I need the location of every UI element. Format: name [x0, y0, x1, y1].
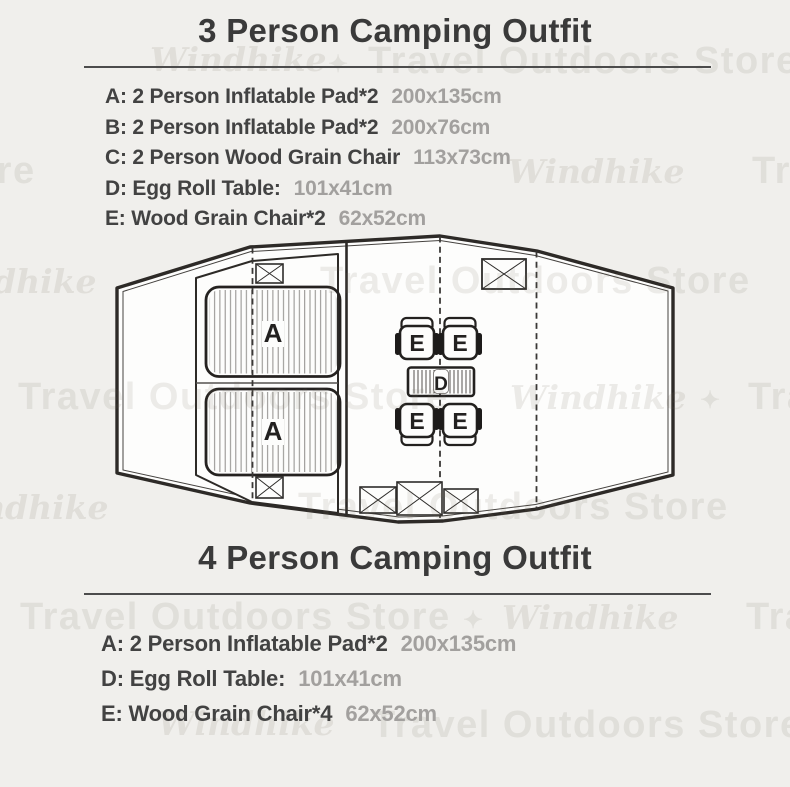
legend-item: C: 2 Person Wood Grain Chair113x73cm [105, 143, 511, 174]
item-size: 200x135cm [391, 85, 501, 108]
tent-floorplan-diagram: A A E [0, 225, 790, 535]
vent-box-top-right [482, 259, 526, 289]
item-size: 101x41cm [298, 666, 402, 691]
legend-item: A: 2 Person Inflatable Pad*2200x135cm [101, 626, 516, 661]
item-label: D: Egg Roll Table: [105, 177, 281, 200]
chair-e-4: E [438, 404, 482, 445]
page-title-3-person: 3 Person Camping Outfit [0, 12, 790, 50]
vent-box-bottom-2 [397, 482, 442, 515]
item-label: A: 2 Person Inflatable Pad*2 [101, 631, 388, 656]
watermark-store: Travel Outdoors Store [0, 150, 36, 193]
chair-e-2: E [438, 318, 482, 359]
item-label: C: 2 Person Wood Grain Chair [105, 146, 400, 169]
legend-item: B: 2 Person Inflatable Pad*2200x76cm [105, 113, 511, 144]
item-label: E: Wood Grain Chair*2 [105, 207, 326, 230]
watermark-store: Travel Outdoors Store [746, 596, 790, 639]
item-label: B: 2 Person Inflatable Pad*2 [105, 116, 378, 139]
watermark-store: Travel Outdoors Store [752, 150, 790, 193]
vent-box-bottom-3 [444, 489, 478, 513]
legend-3-person: A: 2 Person Inflatable Pad*2200x135cm B:… [105, 82, 511, 235]
vent-box-bedroom-bottom [256, 477, 283, 498]
page-title-4-person: 4 Person Camping Outfit [0, 539, 790, 577]
egg-roll-table: D [408, 368, 474, 397]
sleeping-pad-a-1: A [206, 287, 340, 377]
item-size: 101x41cm [294, 177, 393, 200]
item-label: A: 2 Person Inflatable Pad*2 [105, 85, 378, 108]
legend-item: E: Wood Grain Chair*462x52cm [101, 696, 516, 731]
item-size: 62x52cm [339, 207, 426, 230]
item-size: 62x52cm [345, 701, 437, 726]
chair-e-2-label: E [452, 330, 467, 356]
chair-e-1-label: E [409, 330, 424, 356]
pad-a-2-label: A [264, 416, 283, 446]
chair-e-3-label: E [409, 408, 424, 434]
divider-rule [84, 593, 711, 595]
item-size: 200x76cm [391, 116, 490, 139]
sleeping-pad-a-2: A [206, 389, 340, 475]
legend-4-person: A: 2 Person Inflatable Pad*2200x135cm D:… [101, 626, 516, 731]
item-size: 200x135cm [401, 631, 517, 656]
watermark-brand: Windhike [502, 598, 678, 637]
pad-a-1-label: A [264, 318, 283, 348]
item-label: D: Egg Roll Table: [101, 666, 285, 691]
divider-rule [84, 66, 711, 68]
vent-box-bedroom-top [256, 264, 283, 283]
item-size: 113x73cm [413, 146, 511, 169]
legend-item: D: Egg Roll Table:101x41cm [105, 174, 511, 205]
item-label: E: Wood Grain Chair*4 [101, 701, 332, 726]
watermark-diamond-icon: ✦ [328, 50, 348, 79]
watermark-brand: Windhike [508, 152, 684, 191]
camping-outfit-infographic: { "section_top":{ "title":"3 Person Camp… [0, 0, 790, 787]
table-d-label: D [434, 374, 448, 395]
legend-item: E: Wood Grain Chair*262x52cm [105, 204, 511, 235]
chair-e-1: E [395, 318, 439, 359]
legend-item: D: Egg Roll Table:101x41cm [101, 661, 516, 696]
chair-e-4-label: E [452, 408, 467, 434]
chair-e-3: E [395, 404, 439, 445]
vent-box-bottom-1 [360, 487, 396, 513]
legend-item: A: 2 Person Inflatable Pad*2200x135cm [105, 82, 511, 113]
